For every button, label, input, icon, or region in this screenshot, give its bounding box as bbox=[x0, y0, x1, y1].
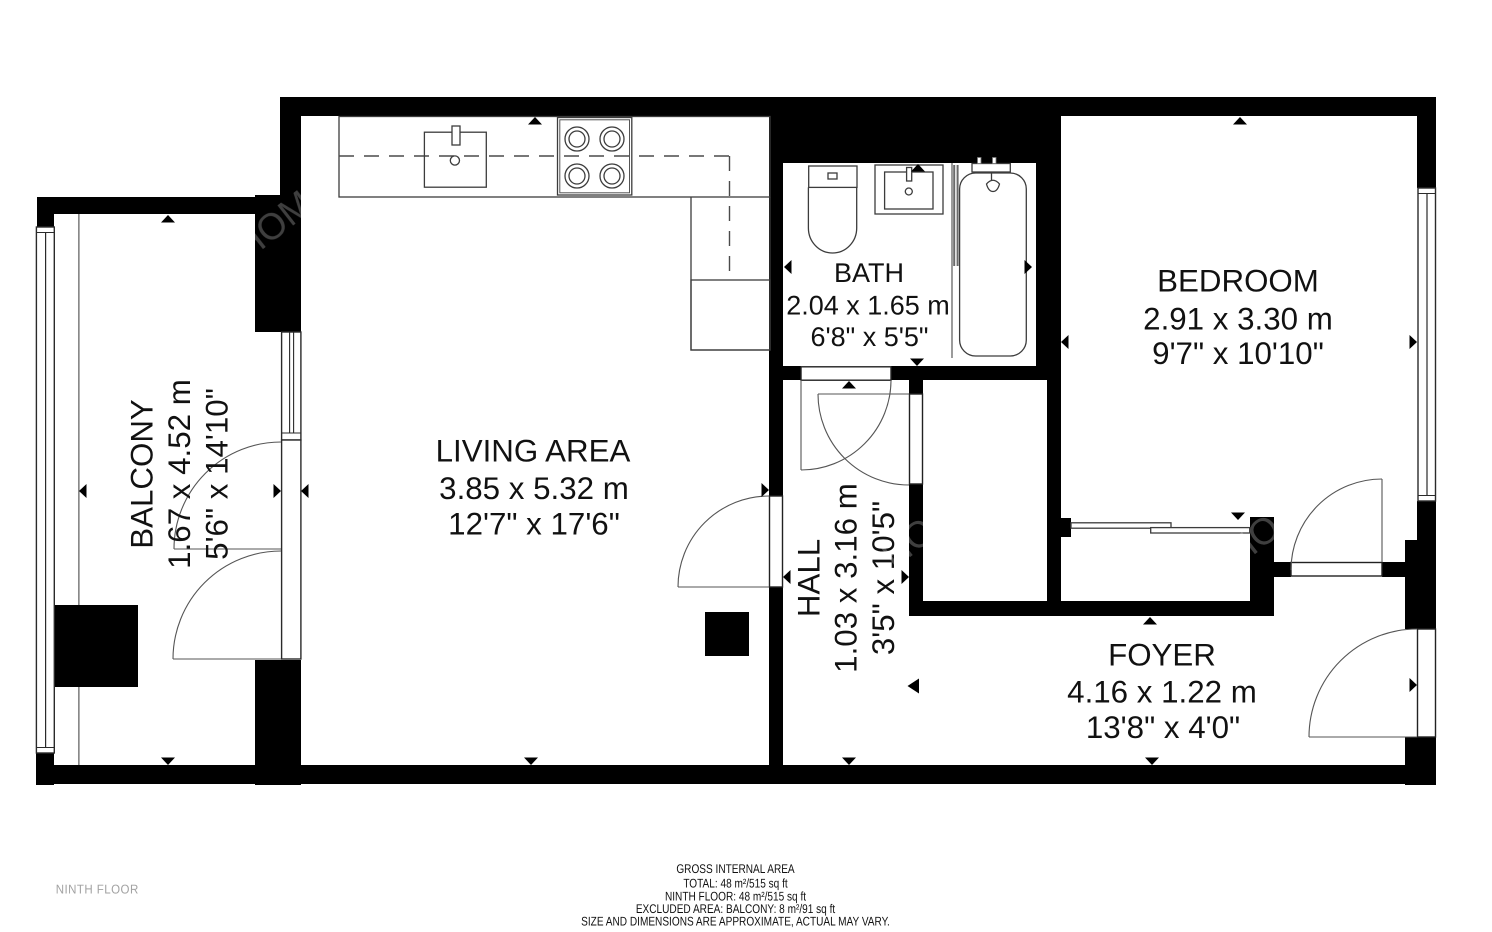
svg-text:2.91 x 3.30 m: 2.91 x 3.30 m bbox=[1143, 302, 1333, 337]
svg-text:12'7" x 17'6": 12'7" x 17'6" bbox=[448, 506, 620, 541]
svg-text:NINTH FLOOR: NINTH FLOOR bbox=[56, 882, 139, 897]
svg-text:5'6" x 14'10": 5'6" x 14'10" bbox=[199, 388, 234, 560]
svg-text:9'7" x 10'10": 9'7" x 10'10" bbox=[1152, 336, 1324, 371]
svg-text:HALL: HALL bbox=[791, 539, 826, 617]
svg-text:6'8" x 5'5": 6'8" x 5'5" bbox=[810, 322, 928, 352]
svg-text:13'8" x 4'0": 13'8" x 4'0" bbox=[1086, 710, 1240, 745]
svg-text:LIVING AREA: LIVING AREA bbox=[436, 433, 631, 468]
svg-text:BATH: BATH bbox=[834, 258, 904, 288]
svg-text:2.04 x 1.65 m: 2.04 x 1.65 m bbox=[786, 290, 950, 320]
svg-text:3'5" x 10'5": 3'5" x 10'5" bbox=[866, 501, 901, 655]
svg-text:TOTAL: 48 m²/515 sq ft: TOTAL: 48 m²/515 sq ft bbox=[683, 876, 788, 890]
svg-text:1.03 x 3.16 m: 1.03 x 3.16 m bbox=[829, 483, 864, 673]
svg-text:FOYER: FOYER bbox=[1108, 638, 1216, 673]
svg-text:BEDROOM: BEDROOM bbox=[1157, 263, 1319, 298]
svg-text:BALCONY: BALCONY bbox=[125, 399, 160, 549]
svg-text:3.85 x 5.32 m: 3.85 x 5.32 m bbox=[439, 471, 629, 506]
svg-text:1.67 x 4.52 m: 1.67 x 4.52 m bbox=[162, 379, 197, 569]
svg-text:4.16 x 1.22 m: 4.16 x 1.22 m bbox=[1067, 675, 1257, 710]
svg-text:GROSS INTERNAL AREA: GROSS INTERNAL AREA bbox=[676, 862, 795, 876]
svg-text:SIZE AND DIMENSIONS ARE APPROX: SIZE AND DIMENSIONS ARE APPROXIMATE, ACT… bbox=[581, 914, 890, 928]
